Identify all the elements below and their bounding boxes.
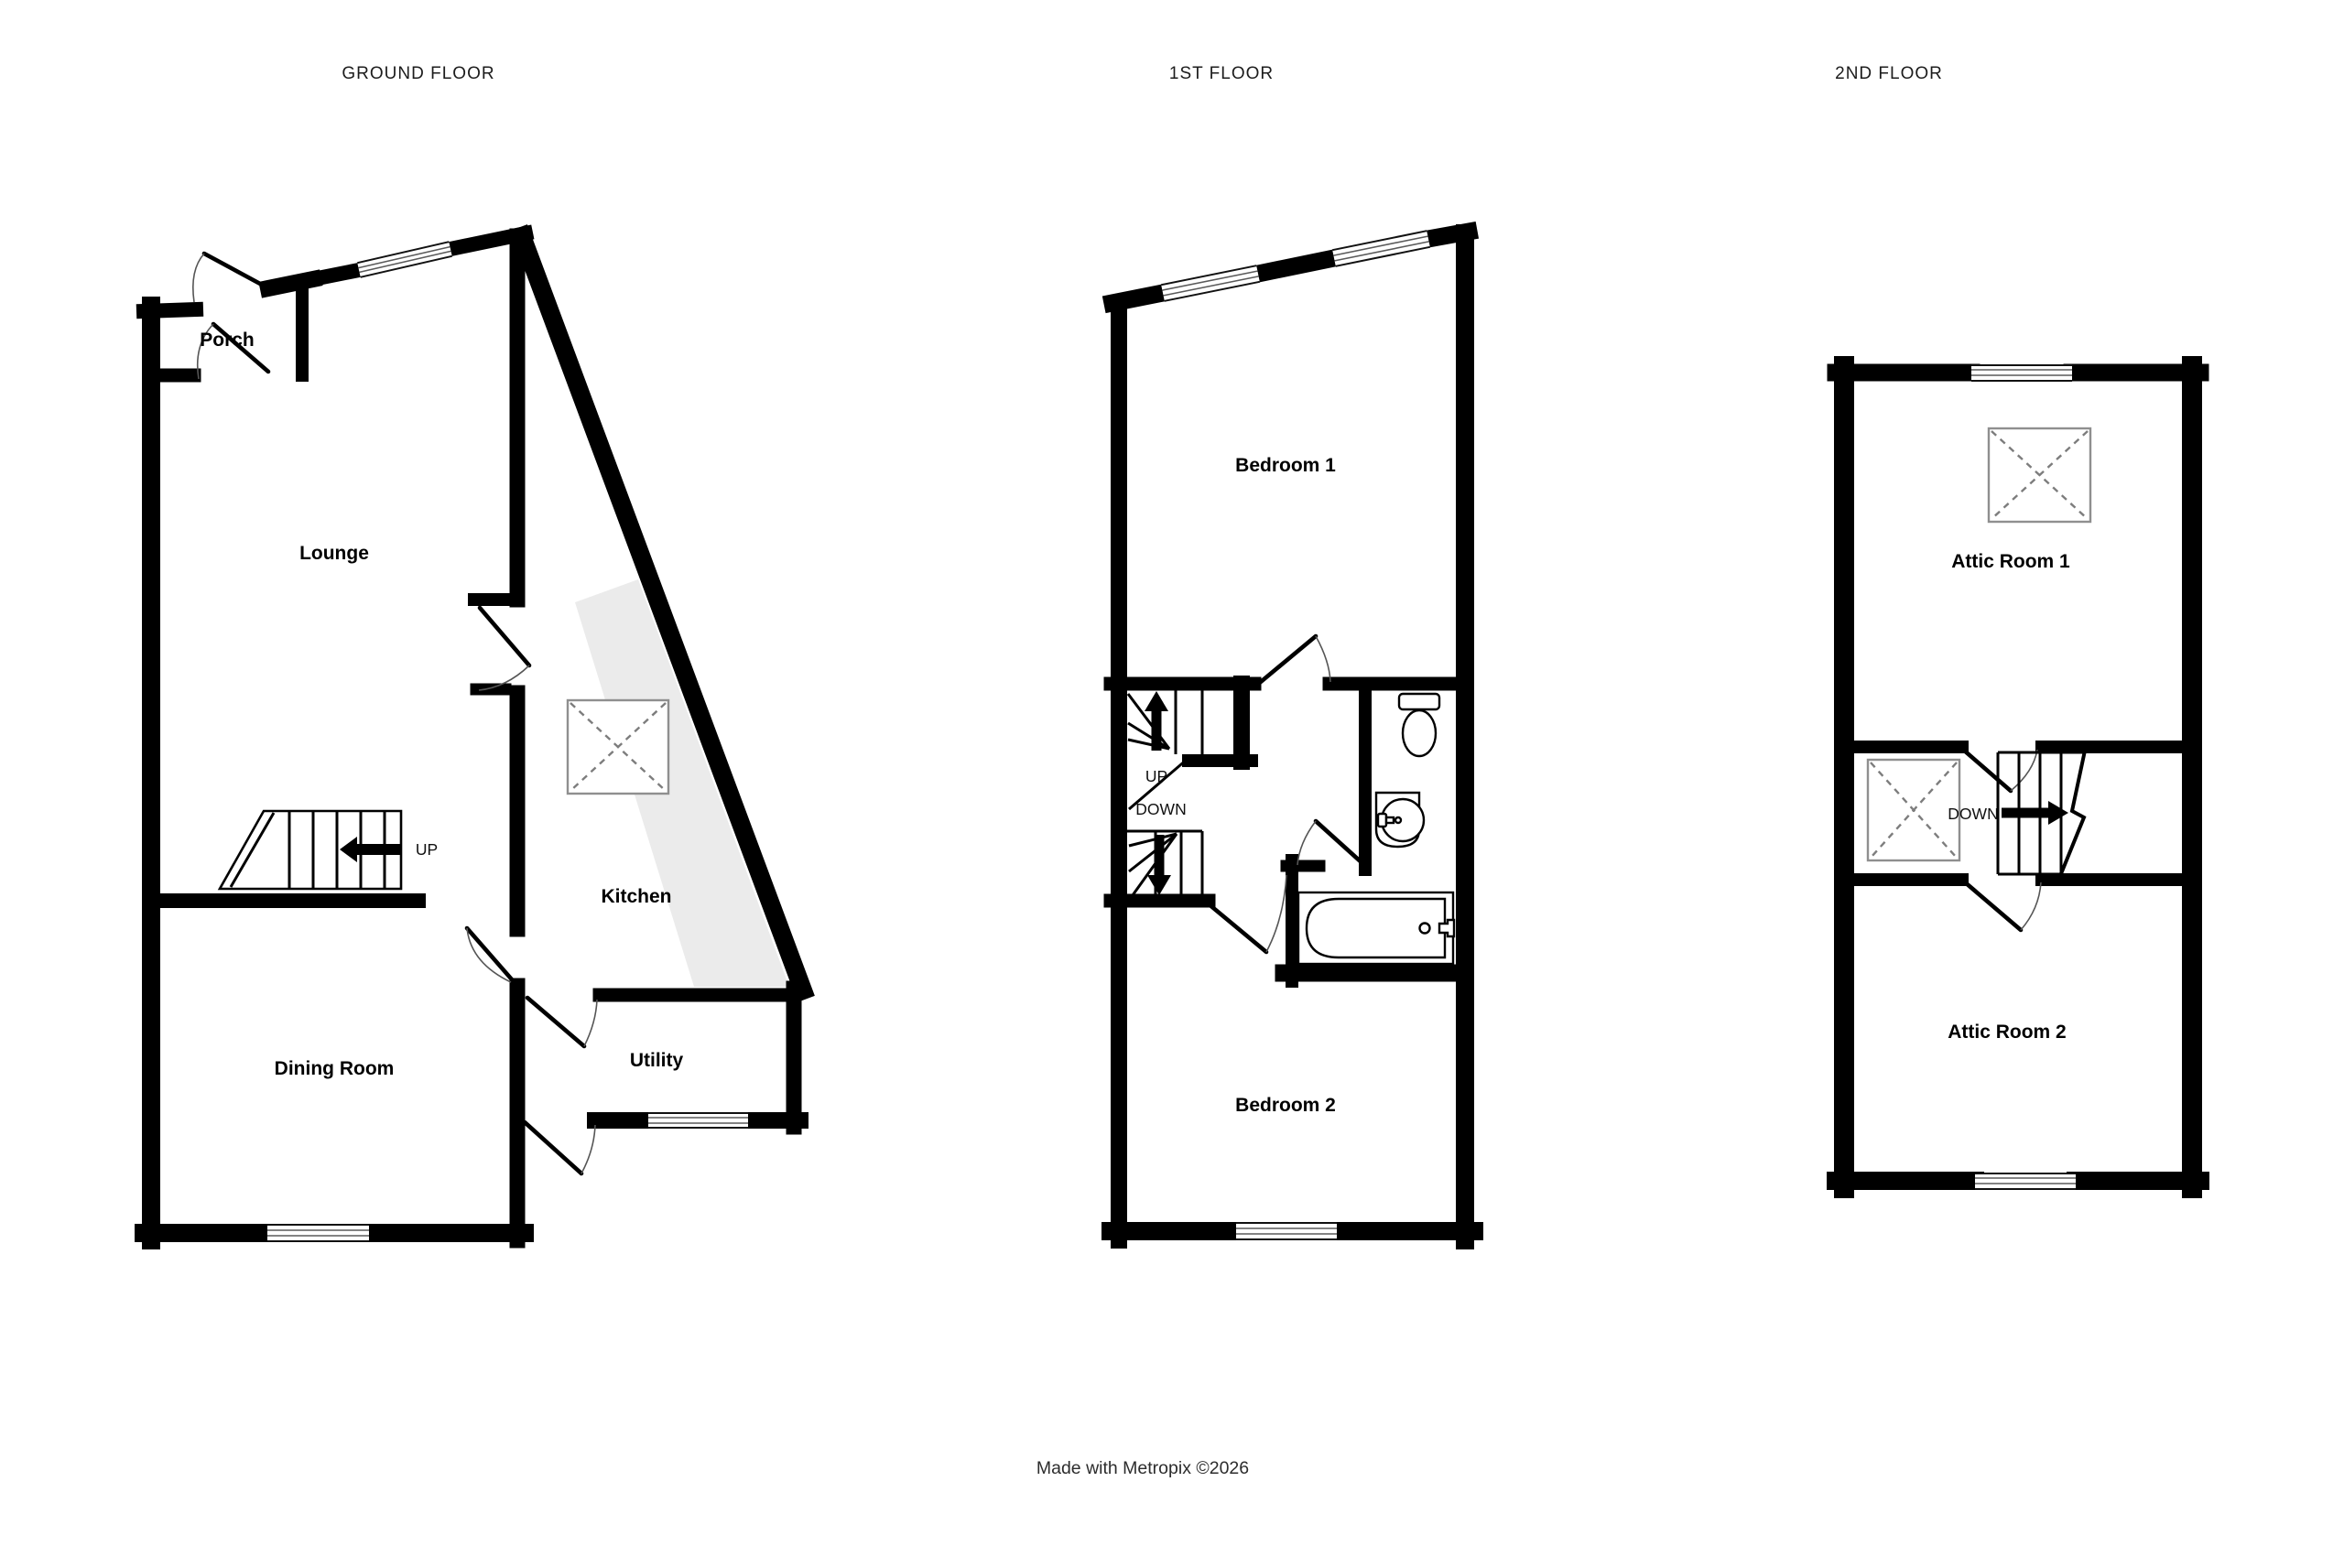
attic2-door-swing — [1964, 881, 2041, 930]
utility-window — [648, 1112, 748, 1129]
floorplan-image: GROUND FLOOR — [0, 0, 2344, 1568]
first-floor-staircase-down — [1127, 831, 1202, 900]
attic1-window — [1971, 364, 2072, 382]
bedroom1-window-left — [1161, 265, 1260, 301]
bedroom1-window-right — [1332, 231, 1430, 266]
down-arrow-icon — [2002, 801, 2068, 825]
ground-up-label: UP — [416, 840, 438, 859]
bedroom1-label: Bedroom 1 — [1235, 455, 1336, 476]
first-floor-staircase-up — [1128, 690, 1202, 809]
ground-floor-walls — [144, 233, 803, 1240]
bedroom2-window — [1236, 1222, 1337, 1240]
first-floor: 1ST FLOOR — [1111, 64, 1474, 1240]
second-floor-staircase — [1998, 751, 2085, 876]
landing-skylight-icon — [1868, 760, 1959, 860]
lounge-label: Lounge — [299, 543, 369, 564]
dining-room-label: Dining Room — [275, 1058, 395, 1079]
ground-floor-staircase — [220, 811, 401, 889]
attic1-door-swing — [1962, 749, 2037, 791]
second-floor: 2ND FLOOR — [1835, 64, 2200, 1190]
attic-room1-label: Attic Room 1 — [1951, 551, 2070, 572]
first-floor-header: 1ST FLOOR — [1169, 64, 1274, 83]
first-down-label: DOWN — [1135, 800, 1186, 818]
first-up-label: UP — [1145, 767, 1167, 785]
attic1-skylight-icon — [1989, 428, 2090, 522]
bedroom2-label: Bedroom 2 — [1235, 1095, 1336, 1116]
back-door-swing — [525, 1122, 595, 1173]
floorplan-page: GROUND FLOOR — [0, 0, 2344, 1568]
kitchen-label: Kitchen — [601, 886, 671, 907]
sink-icon — [1376, 793, 1424, 847]
kitchen-skylight-icon — [568, 700, 668, 794]
utility-door-swing — [527, 998, 597, 1046]
ground-floor-header: GROUND FLOOR — [342, 64, 494, 83]
second-floor-header: 2ND FLOOR — [1835, 64, 1943, 83]
bathroom-door-swing — [1297, 821, 1363, 865]
lounge-top-window — [357, 242, 451, 277]
porch-label: Porch — [200, 330, 255, 351]
utility-label: Utility — [630, 1050, 684, 1071]
ground-floor: GROUND FLOOR — [144, 64, 803, 1242]
bedroom1-door-swing — [1256, 636, 1330, 686]
credit-text: Made with Metropix ©2026 — [1036, 1458, 1249, 1478]
bath-icon — [1298, 892, 1454, 964]
lounge-kitchen-door-swing — [479, 608, 529, 690]
dining-window — [267, 1224, 369, 1242]
down-arrow-icon — [1147, 835, 1171, 895]
toilet-icon — [1399, 694, 1439, 756]
attic2-window — [1975, 1173, 2076, 1190]
bedroom2-door-swing — [1207, 875, 1286, 952]
front-door-swing — [193, 254, 272, 302]
attic-room2-label: Attic Room 2 — [1948, 1022, 2067, 1043]
second-down-label: DOWN — [1948, 805, 1998, 823]
